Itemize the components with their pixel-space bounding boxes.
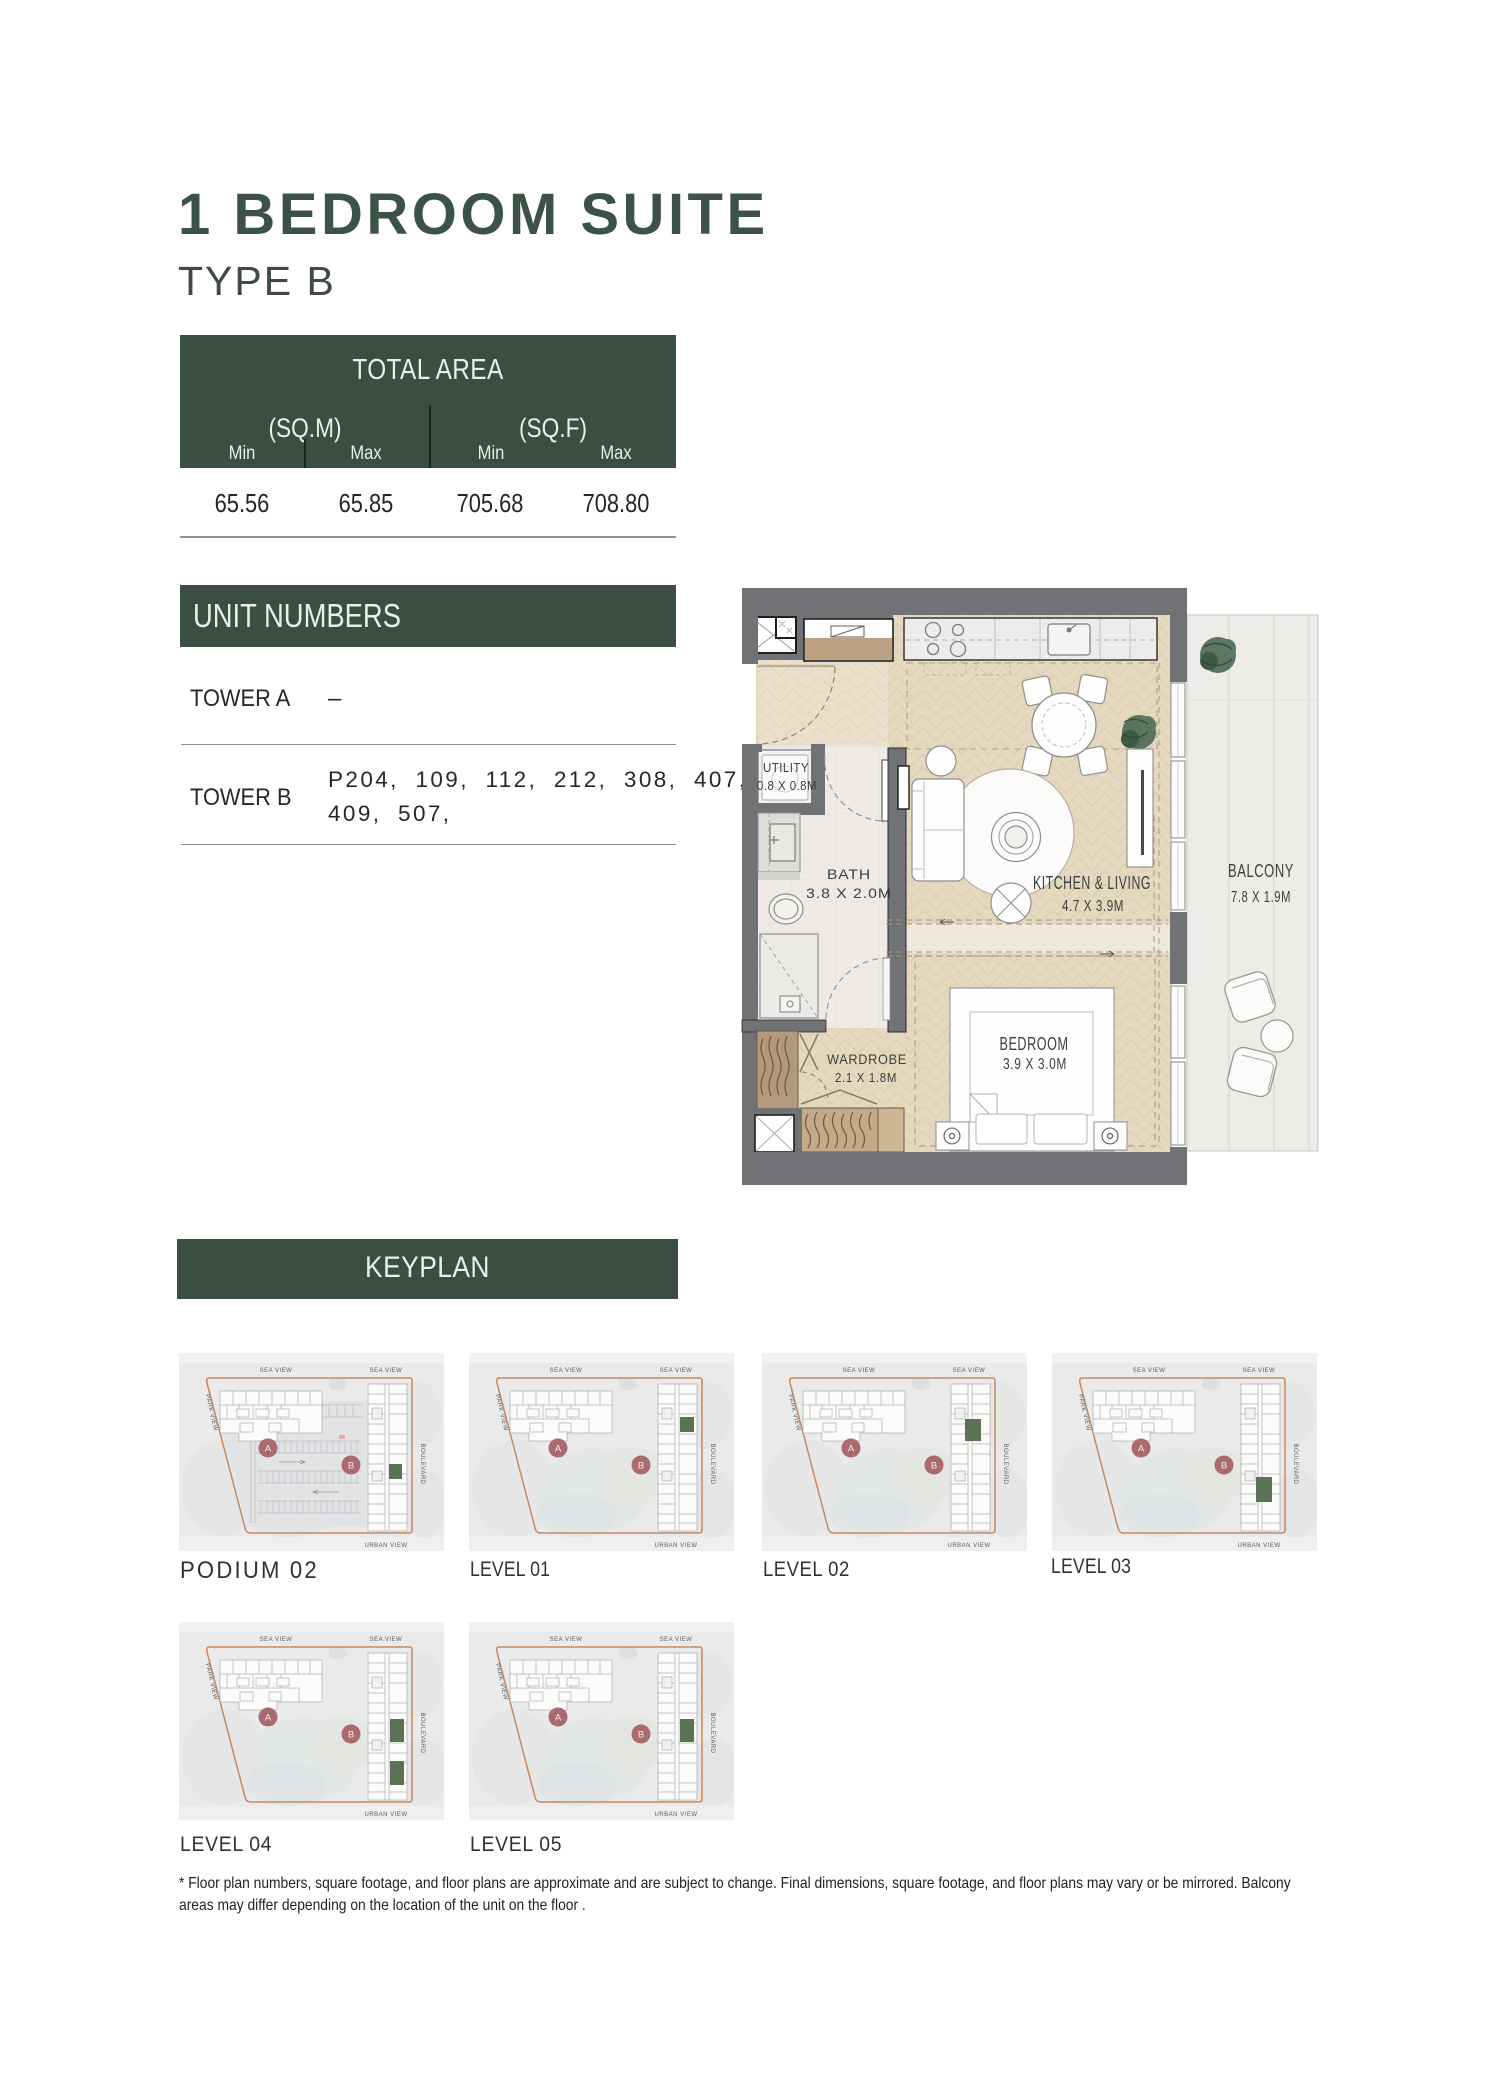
svg-text:0.8 X 0.8M: 0.8 X 0.8M — [757, 779, 817, 793]
svg-text:3.8 X 2.0M: 3.8 X 2.0M — [806, 886, 892, 901]
svg-text:BALCONY: BALCONY — [1228, 861, 1294, 881]
svg-text:BATH: BATH — [827, 866, 871, 882]
svg-text:2.1 X 1.8M: 2.1 X 1.8M — [835, 1070, 897, 1085]
svg-text:UTILITY: UTILITY — [763, 760, 809, 775]
svg-text:3.9 X 3.0M: 3.9 X 3.0M — [1003, 1056, 1067, 1073]
svg-text:4.7 X 3.9M: 4.7 X 3.9M — [1062, 898, 1124, 915]
svg-text:BEDROOM: BEDROOM — [1000, 1034, 1069, 1054]
svg-text:7.8 X 1.9M: 7.8 X 1.9M — [1231, 889, 1291, 906]
svg-text:WARDROBE: WARDROBE — [827, 1051, 907, 1067]
svg-text:KITCHEN & LIVING: KITCHEN & LIVING — [1033, 873, 1151, 893]
